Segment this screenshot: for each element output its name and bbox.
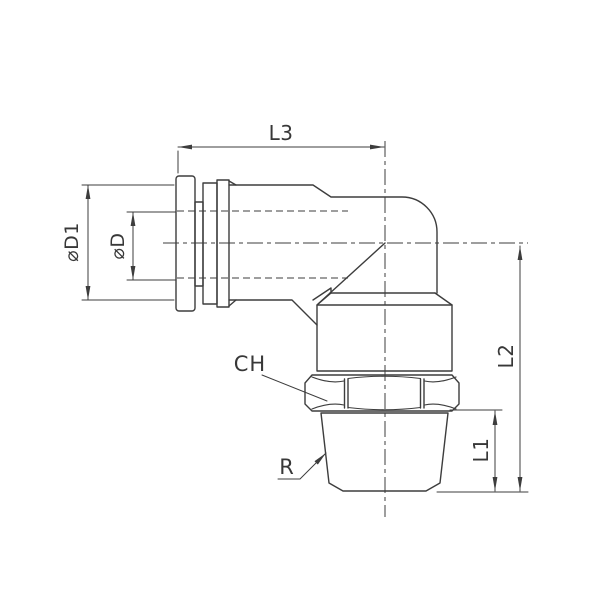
dim-d1-label: ⌀D1 (61, 222, 83, 262)
hex-chamfer-arcs (312, 376, 456, 410)
label-r: R (279, 455, 295, 479)
elbow-fitting-technical-drawing: L3 ⌀D1 ⌀D L2 L1 CH R (0, 0, 600, 600)
cap-neck (195, 202, 203, 286)
dim-l1-label: L1 (469, 438, 493, 463)
dim-l2-label: L2 (494, 344, 518, 369)
dim-l3-label: L3 (269, 121, 294, 145)
technical-drawing-page: L3 ⌀D1 ⌀D L2 L1 CH R (0, 0, 600, 600)
hex-facet-lines (345, 379, 425, 408)
hex-nut-outline (305, 375, 459, 411)
dim-d-extension-lines (127, 212, 176, 280)
barrel-elbow-outline (229, 185, 437, 293)
dim-d-label: ⌀D (107, 232, 129, 259)
label-ch: CH (234, 352, 266, 376)
barrel-bottom-edge (229, 300, 317, 325)
